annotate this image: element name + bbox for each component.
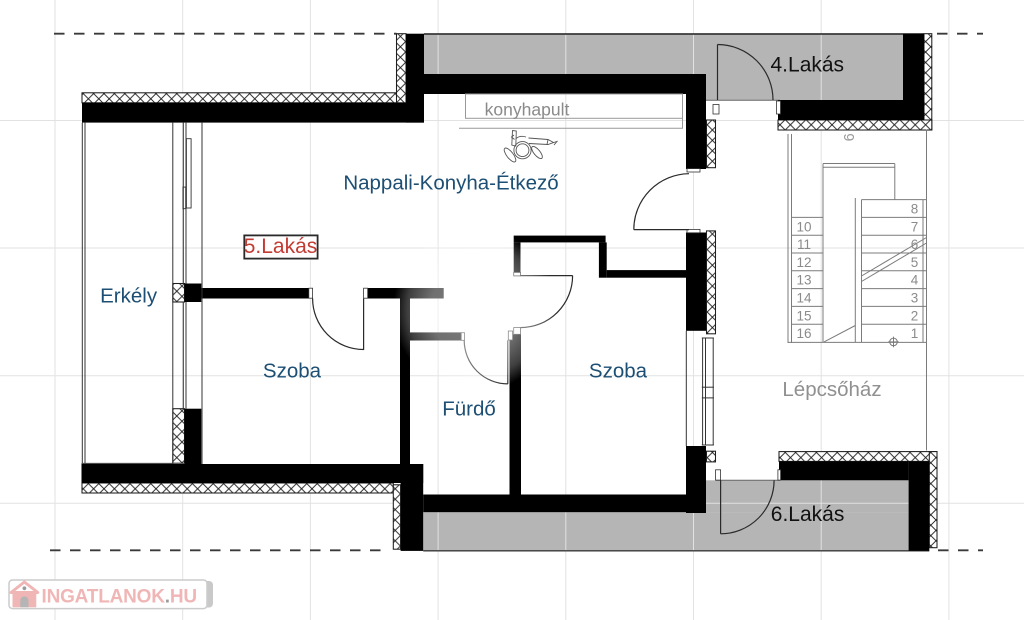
svg-text:16: 16	[796, 326, 811, 341]
svg-text:6: 6	[911, 237, 919, 252]
svg-text:Lépcsőház: Lépcsőház	[782, 378, 881, 401]
svg-text:Nappali-Konyha-Étkező: Nappali-Konyha-Étkező	[343, 171, 558, 194]
svg-text:6.Lakás: 6.Lakás	[771, 503, 845, 526]
svg-text:5.Lakás: 5.Lakás	[244, 235, 318, 258]
svg-text:15: 15	[796, 308, 811, 323]
svg-text:Szoba: Szoba	[263, 359, 322, 382]
svg-text:Szoba: Szoba	[589, 359, 648, 382]
svg-text:14: 14	[796, 291, 812, 306]
svg-text:10: 10	[796, 219, 811, 234]
svg-text:2: 2	[911, 308, 919, 323]
svg-text:8: 8	[911, 202, 919, 217]
svg-text:11: 11	[797, 237, 811, 252]
svg-text:6: 6	[842, 133, 858, 141]
svg-text:12: 12	[796, 255, 811, 270]
svg-text:4.Lakás: 4.Lakás	[771, 53, 845, 76]
svg-text:INGATLANOK.HU: INGATLANOK.HU	[42, 587, 197, 608]
svg-text:1: 1	[911, 326, 919, 341]
svg-text:3: 3	[911, 291, 919, 306]
svg-text:7: 7	[911, 219, 919, 234]
svg-text:Fürdő: Fürdő	[442, 398, 496, 421]
svg-text:konyhapult: konyhapult	[485, 100, 570, 120]
svg-text:Erkély: Erkély	[100, 284, 158, 307]
svg-text:5: 5	[911, 255, 919, 270]
svg-text:4: 4	[911, 273, 919, 288]
svg-text:13: 13	[796, 273, 811, 288]
